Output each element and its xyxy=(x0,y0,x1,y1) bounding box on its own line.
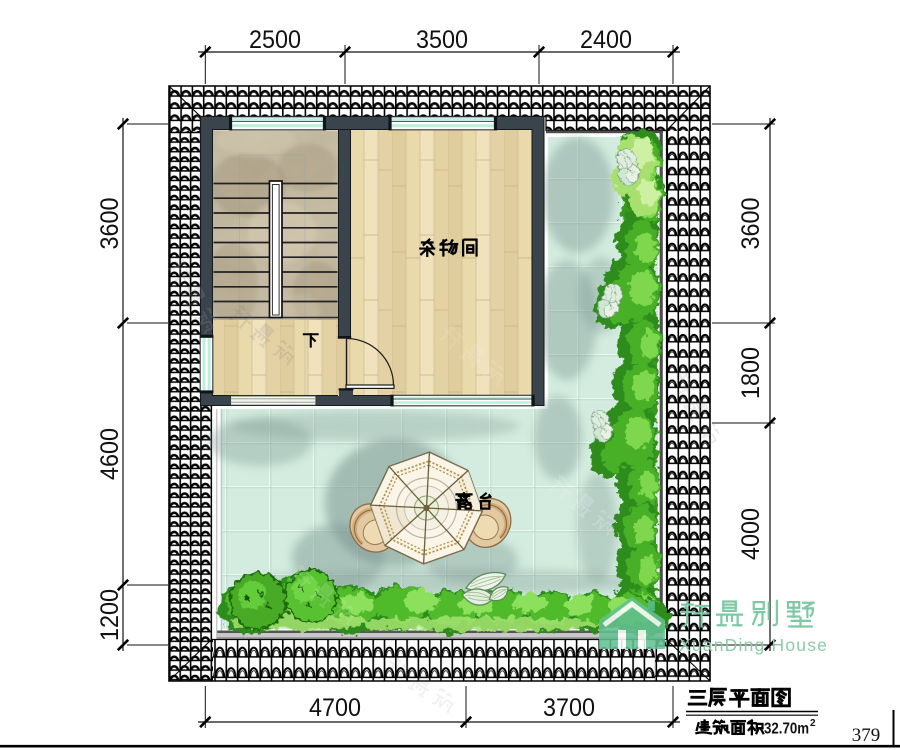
svg-text:1200: 1200 xyxy=(96,589,124,641)
svg-text:379: 379 xyxy=(852,725,881,746)
svg-text:4000: 4000 xyxy=(737,508,765,560)
svg-text:1800: 1800 xyxy=(737,347,765,399)
svg-text:3700: 3700 xyxy=(543,694,595,722)
svg-text:4600: 4600 xyxy=(96,428,124,480)
svg-text:3600: 3600 xyxy=(737,198,765,250)
svg-text:3600: 3600 xyxy=(96,198,124,250)
svg-text:4700: 4700 xyxy=(309,694,361,722)
svg-text:32.70m: 32.70m xyxy=(764,721,809,738)
svg-text:2: 2 xyxy=(810,718,816,729)
svg-text:2400: 2400 xyxy=(580,26,632,54)
svg-text:2500: 2500 xyxy=(249,26,301,54)
svg-text:XuanDing House: XuanDing House xyxy=(679,635,828,655)
svg-text:3500: 3500 xyxy=(416,26,468,54)
